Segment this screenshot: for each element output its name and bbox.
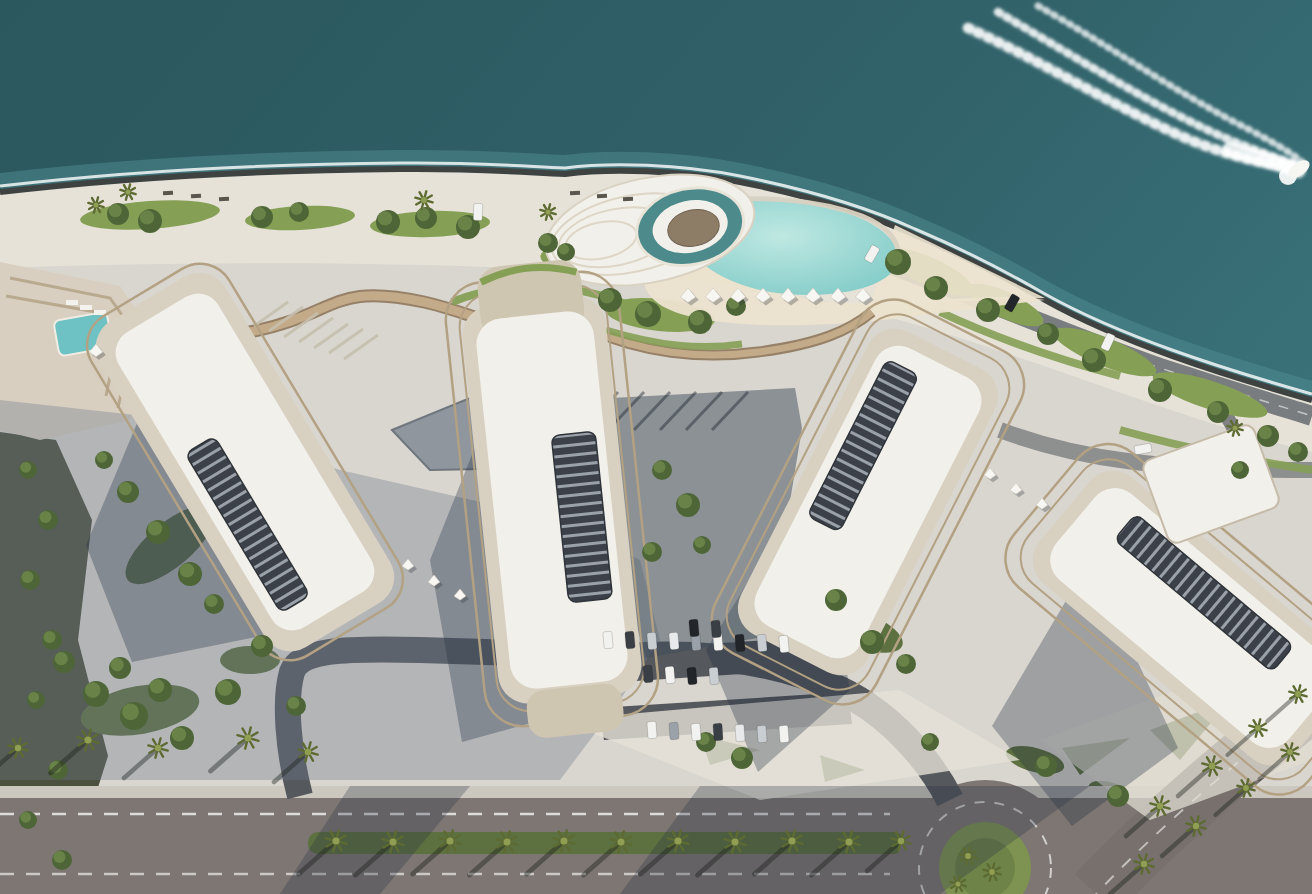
tree-highlight	[1084, 349, 1098, 363]
tree-highlight	[1259, 426, 1272, 439]
tree-highlight	[54, 851, 66, 863]
tree-highlight	[1209, 402, 1222, 415]
tree-highlight	[654, 461, 666, 473]
palm-crown	[125, 189, 130, 194]
car	[757, 634, 767, 652]
tree-highlight	[291, 203, 303, 215]
tree-highlight	[288, 697, 300, 709]
tree-highlight	[150, 679, 164, 693]
tree-highlight	[1037, 756, 1050, 769]
palm-crown	[389, 838, 396, 845]
palm-crown	[560, 837, 567, 844]
palm-crown	[15, 745, 21, 751]
tree-highlight	[898, 655, 910, 667]
tree-highlight	[180, 563, 194, 577]
car	[711, 620, 721, 638]
tree-highlight	[40, 511, 52, 523]
car	[603, 631, 613, 649]
tree-highlight	[417, 208, 430, 221]
tree-highlight	[862, 631, 876, 645]
tree-highlight	[206, 595, 218, 607]
palm-crown	[788, 837, 795, 844]
palm-crown	[1209, 763, 1215, 769]
tree-highlight	[253, 207, 266, 220]
palm-crown	[503, 838, 510, 845]
tree-highlight	[926, 277, 940, 291]
palm-crown	[421, 197, 427, 203]
car	[687, 667, 697, 685]
palm-crown	[845, 838, 852, 845]
tree-highlight	[44, 631, 56, 643]
palm-crown	[898, 838, 904, 844]
bench	[219, 197, 229, 202]
tree-highlight	[600, 289, 614, 303]
bench	[191, 194, 201, 199]
bench	[570, 191, 580, 196]
car	[735, 634, 745, 652]
tree-highlight	[122, 703, 139, 720]
palm-crown	[1232, 425, 1237, 430]
palm-crown	[1255, 725, 1261, 731]
waterfront-development-scene	[0, 0, 1312, 894]
car	[709, 667, 719, 685]
car	[691, 723, 701, 741]
palm-crown	[617, 838, 624, 845]
car	[647, 721, 657, 739]
aerial-render	[0, 0, 1312, 894]
palm-crown	[731, 838, 738, 845]
tree-highlight	[96, 452, 107, 463]
palm-crown	[93, 202, 98, 207]
palm-crown	[1295, 691, 1301, 697]
car	[643, 665, 653, 683]
palm-crown	[1193, 823, 1199, 829]
tree-highlight	[140, 210, 154, 224]
tree-highlight	[28, 692, 39, 703]
tree-highlight	[172, 727, 186, 741]
tree-highlight	[644, 543, 656, 555]
palm-crown	[674, 837, 681, 844]
tree-highlight	[1290, 443, 1302, 455]
palm-crown	[446, 837, 453, 844]
palm-crown	[965, 853, 971, 859]
palm-crown	[332, 837, 339, 844]
car	[665, 666, 675, 684]
tree-highlight	[148, 521, 162, 535]
palm-crown	[84, 736, 91, 743]
palm-crown	[989, 869, 995, 875]
tree-highlight	[540, 234, 552, 246]
tree-highlight	[20, 462, 31, 473]
tree-highlight	[1150, 379, 1164, 393]
palm-crown	[244, 734, 251, 741]
tree-highlight	[458, 216, 472, 230]
tree-highlight	[978, 299, 992, 313]
car	[713, 723, 723, 741]
palm-crown	[305, 749, 311, 755]
palm-crown	[1287, 749, 1293, 755]
tree-highlight	[1109, 786, 1122, 799]
car	[669, 632, 679, 650]
tree-highlight	[109, 204, 122, 217]
tree-highlight	[1039, 324, 1052, 337]
car	[473, 203, 483, 220]
car	[757, 725, 767, 743]
tree-highlight	[22, 571, 34, 583]
tree-highlight	[694, 537, 705, 548]
tree-highlight	[922, 734, 933, 745]
tree-highlight	[887, 250, 903, 266]
palm-crown	[1141, 861, 1147, 867]
car	[689, 619, 699, 637]
car	[625, 631, 635, 649]
car	[735, 724, 745, 742]
car	[647, 632, 657, 650]
palm-crown	[1157, 803, 1163, 809]
palm-crown	[1243, 785, 1249, 791]
tree-highlight	[637, 302, 653, 318]
tree-highlight	[253, 636, 266, 649]
tree-highlight	[733, 748, 746, 761]
tree-highlight	[119, 482, 132, 495]
tree-highlight	[217, 680, 233, 696]
tree-highlight	[111, 658, 124, 671]
tree-highlight	[85, 682, 101, 698]
bench	[163, 191, 173, 196]
tree-highlight	[827, 590, 840, 603]
tree-highlight	[678, 494, 692, 508]
car	[669, 722, 679, 740]
palm-crown	[955, 881, 960, 886]
bench	[623, 197, 633, 202]
palm-crown	[545, 209, 550, 214]
car	[779, 635, 789, 653]
tree-highlight	[20, 812, 31, 823]
tree-highlight	[55, 652, 68, 665]
tree-highlight	[690, 311, 704, 325]
tree-highlight	[558, 244, 569, 255]
tree-highlight	[1232, 462, 1243, 473]
tree-highlight	[378, 211, 392, 225]
bench	[597, 194, 607, 199]
palm-crown	[155, 745, 161, 751]
car	[779, 725, 789, 743]
